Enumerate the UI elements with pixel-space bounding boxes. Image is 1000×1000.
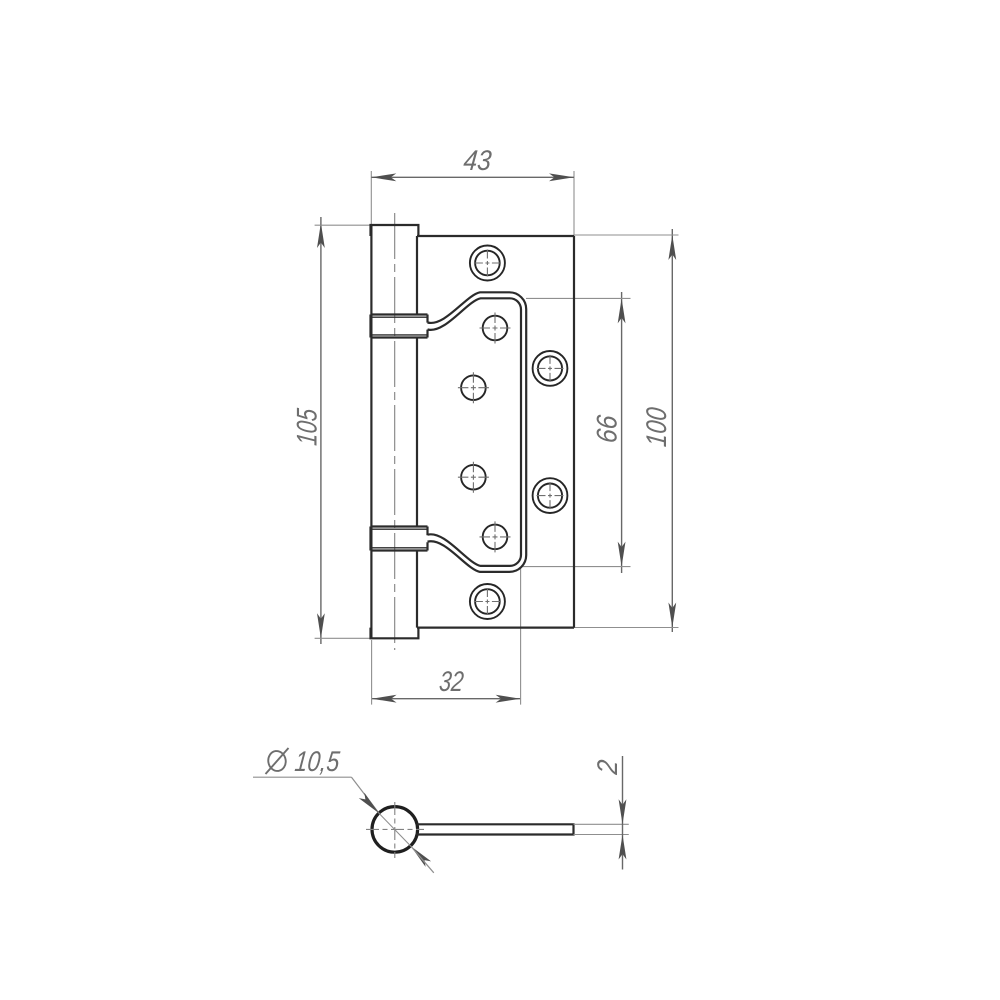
svg-text:100: 100 [641,406,673,448]
svg-text:66: 66 [592,414,624,445]
svg-text:10,5: 10,5 [293,746,341,778]
svg-text:43: 43 [462,145,493,177]
svg-text:105: 105 [292,407,324,447]
svg-text:32: 32 [438,666,465,698]
